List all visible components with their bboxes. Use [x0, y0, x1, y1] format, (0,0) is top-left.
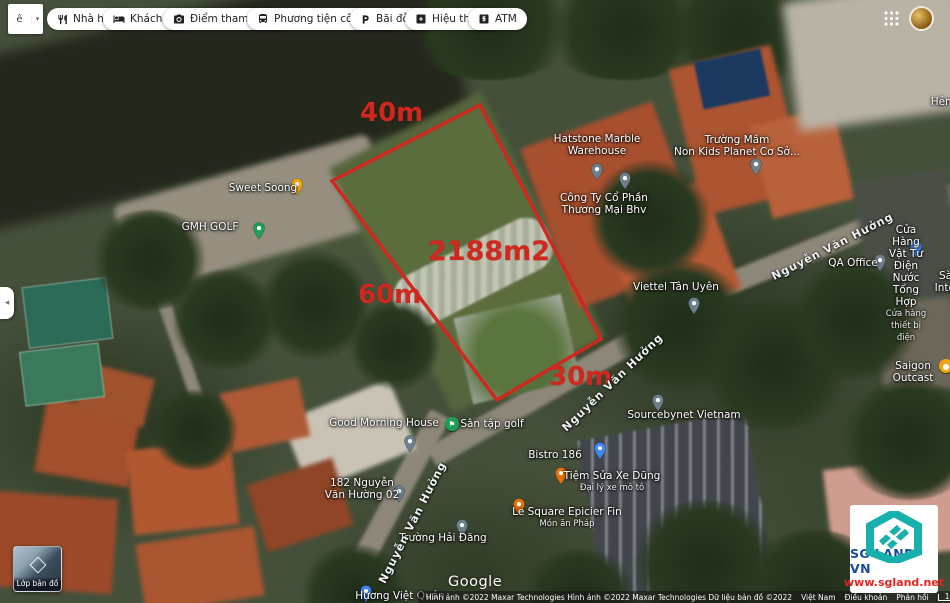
chip-atm[interactable]: ATM — [468, 8, 527, 30]
google-logo: Google — [448, 574, 502, 590]
parking-icon — [360, 14, 371, 25]
poi-label-text: Cửa Hàng Vật Tư Điện Nước Tổng Hợp — [889, 224, 923, 308]
google-maps-satellite-view: 40m 2188m2 60m 30m ⚑ ● Sweet Soong GMH G… — [0, 0, 950, 603]
poi-label[interactable]: Trường Mầm Non Kids Planet Cơ Sở... — [674, 134, 800, 158]
poi-label[interactable]: Hẻm — [931, 96, 950, 108]
sgland-watermark: SG LAND VN www.sgland.net — [850, 505, 938, 593]
transit-icon — [257, 13, 269, 25]
chevron-down-icon[interactable]: ▾ — [31, 15, 43, 23]
poi-label[interactable]: Le Square Epicier Fin Món ăn Pháp — [512, 494, 622, 542]
map-pin-icon[interactable] — [750, 158, 763, 176]
dimension-label-left: 60m — [358, 280, 421, 310]
golf-icon[interactable]: ⚑ — [445, 417, 459, 431]
watermark-url: www.sgland.net — [844, 576, 944, 589]
poi-label[interactable]: Công Ty Cổ Phần Thương Mại Bhv — [560, 192, 648, 216]
atm-icon — [478, 13, 490, 25]
restaurant-icon — [57, 14, 68, 25]
poi-label[interactable]: Good Morning House — [329, 417, 439, 429]
feedback-link[interactable]: Phản hồi — [896, 593, 928, 602]
dimension-label-top: 40m — [360, 98, 423, 128]
poi-label-sub: Đại lý xe mô tô — [564, 482, 661, 494]
poi-label[interactable]: Viettel Tân Uyên — [633, 281, 719, 293]
poi-label[interactable]: Sweet Soong — [229, 182, 297, 194]
poi-label[interactable]: Sân tập golf — [460, 418, 523, 430]
sgland-logo-icon — [865, 511, 923, 563]
poi-label-text: Le Square Epicier Fin — [512, 506, 622, 518]
poi-label[interactable]: 182 Nguyễn Văn Hường 02 — [325, 477, 400, 501]
pharmacy-icon — [415, 13, 427, 25]
saigon-outcast-icon[interactable]: ● — [939, 359, 950, 373]
attraction-icon — [173, 13, 185, 25]
poi-label[interactable]: GMH GOLF — [182, 221, 239, 233]
chip-label: ATM — [495, 13, 517, 25]
poi-label[interactable]: Cửa Hàng Vật Tư Điện Nước Tổng Hợp Cửa h… — [884, 212, 928, 356]
apps-grid-icon[interactable] — [884, 11, 899, 26]
poi-label[interactable]: QA Office — [828, 257, 877, 269]
parcel-outline-overlay — [0, 0, 950, 603]
poi-label-sub: Cửa hàng thiết bị điện — [884, 308, 928, 344]
map-pin-icon[interactable] — [619, 172, 632, 190]
poi-label-text: Tiệm Sửa Xe Dũng — [564, 470, 661, 482]
layers-button-label: Lớp bản đồ — [14, 577, 61, 591]
poi-label-sub: Món ăn Pháp — [512, 518, 622, 530]
terms-link[interactable]: Điều khoản — [845, 593, 888, 602]
attribution-region: Việt Nam — [801, 593, 836, 602]
poi-label[interactable]: Sài Inter — [935, 270, 950, 294]
map-pin-icon[interactable] — [404, 435, 417, 453]
side-panel-collapse-button[interactable]: ◂ — [0, 287, 14, 319]
mini-search-box[interactable]: ê ▾ — [8, 4, 43, 34]
layers-icon — [29, 557, 46, 574]
map-pin-icon[interactable] — [253, 222, 266, 240]
poi-label[interactable]: Hatstone Marble Warehouse — [554, 133, 641, 157]
map-pin-icon[interactable] — [688, 297, 701, 315]
mini-search-glyph: ê — [8, 14, 31, 25]
poi-label[interactable]: Saigon Outcast — [893, 360, 934, 384]
area-label: 2188m2 — [428, 236, 550, 267]
poi-label[interactable]: Sourcebynet Vietnam — [627, 409, 740, 421]
hotel-icon — [113, 13, 125, 25]
map-scale[interactable]: 10 m — [938, 594, 950, 601]
avatar[interactable] — [909, 6, 934, 31]
attribution-copyright: Hình ảnh ©2022 Maxar Technologies Hình ả… — [426, 593, 792, 602]
layers-button[interactable]: Lớp bản đồ — [13, 546, 62, 592]
map-pin-icon[interactable] — [591, 163, 604, 181]
